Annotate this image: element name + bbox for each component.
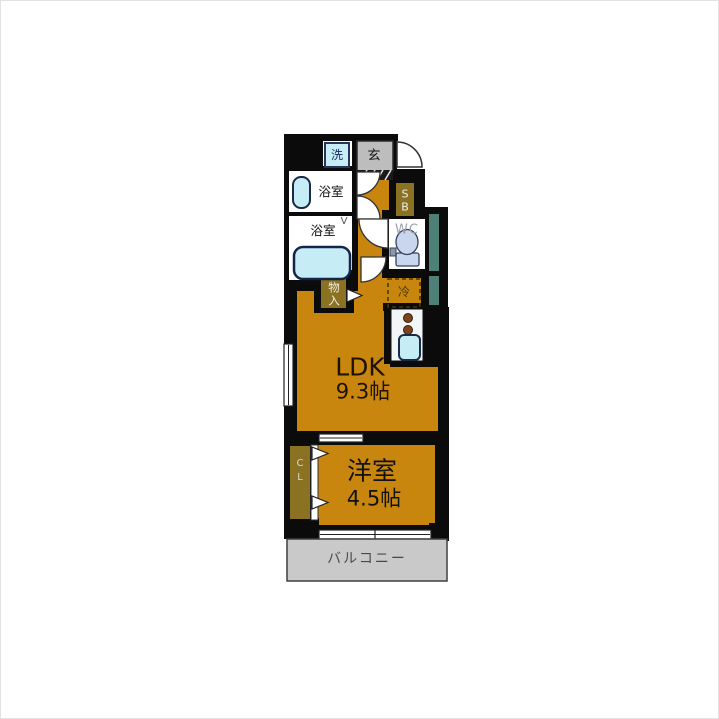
kitchen-sink [399,335,420,360]
floor-plan-image: 洗 玄 浴室 浴室 V S B WC 物 入 冷 LDK 9.3帖 C L 洋室… [0,0,719,719]
storage-label-1: 物 [328,282,340,294]
ldk-label: LDK [335,355,385,380]
entrance-label: 玄 [367,150,380,163]
balcony-label: バルコニー [327,552,407,566]
bathroom-label: 浴室 [310,225,335,238]
pipe-shafts [429,214,439,305]
washroom-label: 浴室 [318,186,343,199]
storage-label-2: 入 [328,295,340,307]
western-room-size-label: 4.5帖 [347,489,401,510]
closet-label-l: L [297,473,303,483]
washbasin [293,177,310,208]
closet-label-c: C [297,459,304,469]
bathtub [294,247,350,279]
shoebox-label-b: B [401,202,409,213]
entry-door-arc [397,142,422,167]
shoebox-label-s: S [402,189,409,200]
western-room-label: 洋室 [347,459,397,484]
ldk-size-label: 9.3帖 [336,382,390,403]
wc-label: WC [395,224,419,237]
vent-mark: V [341,217,348,227]
washer-label: 洗 [331,149,343,161]
fridge-label: 冷 [398,286,410,298]
